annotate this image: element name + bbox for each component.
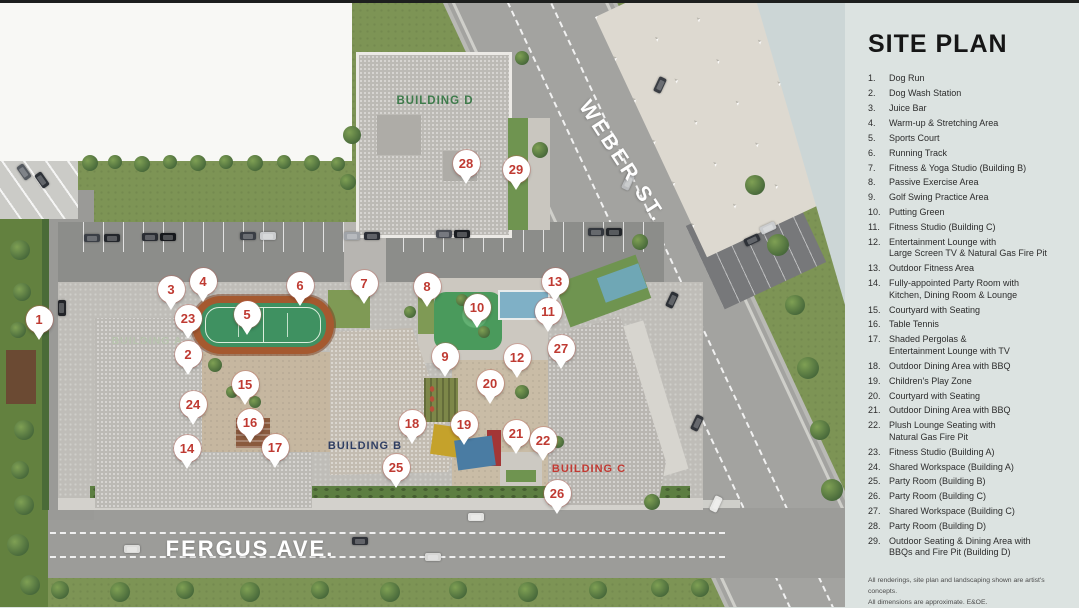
legend-item: 22.Plush Lounge Seating with Natural Gas… (868, 420, 1065, 443)
legend-item: 29.Outdoor Seating & Dining Area with BB… (868, 536, 1065, 559)
legend-item: 7.Fitness & Yoga Studio (Building B) (868, 163, 1065, 174)
map-marker-18: 18 (399, 410, 426, 437)
legend-item-number: 9. (868, 192, 889, 203)
legend-item-number: 27. (868, 506, 889, 517)
map-marker-25: 25 (383, 454, 410, 481)
car (468, 513, 484, 521)
legend-item-number: 4. (868, 118, 889, 129)
legend-item-text: Party Room (Building C) (889, 491, 1065, 502)
map-marker-23: 23 (175, 305, 202, 332)
car (588, 228, 604, 236)
tree (134, 156, 150, 172)
legend-item-text: Outdoor Dining Area with BBQ (889, 361, 1065, 372)
tree (821, 479, 843, 501)
map-marker-6: 6 (287, 272, 314, 299)
map-marker-26: 26 (544, 480, 571, 507)
building-d-terrace-deck (528, 118, 550, 230)
legend-item: 2.Dog Wash Station (868, 88, 1065, 99)
legend-item: 20.Courtyard with Seating (868, 391, 1065, 402)
tree (110, 582, 130, 602)
car (436, 230, 452, 238)
legend-item: 3.Juice Bar (868, 103, 1065, 114)
neighbor-parking-lot (0, 161, 78, 219)
car (58, 300, 66, 316)
map-marker-7: 7 (351, 270, 378, 297)
map-marker-24: 24 (180, 391, 207, 418)
legend-item-number: 22. (868, 420, 889, 443)
legend-item: 16.Table Tennis (868, 319, 1065, 330)
car (104, 234, 120, 242)
disclaimer-line-1: All renderings, site plan and landscapin… (868, 575, 1065, 597)
building-d-label: BUILDING D (396, 95, 473, 107)
tree (219, 155, 233, 169)
map-marker-21: 21 (503, 420, 530, 447)
legend-item: 25.Party Room (Building B) (868, 476, 1065, 487)
map-marker-27: 27 (548, 335, 575, 362)
legend-item-number: 28. (868, 521, 889, 532)
legend-item-number: 20. (868, 391, 889, 402)
tree (518, 582, 538, 602)
tree (515, 385, 529, 399)
legend-item-number: 26. (868, 491, 889, 502)
tree (745, 175, 765, 195)
mulch-bed (6, 350, 36, 404)
tree (651, 579, 669, 597)
legend-list: 1.Dog Run2.Dog Wash Station3.Juice Bar4.… (868, 73, 1065, 559)
legend-item: 17.Shaded Pergolas & Entertainment Loung… (868, 334, 1065, 357)
legend-item: 14.Fully-appointed Party Room with Kitch… (868, 278, 1065, 301)
map-marker-4: 4 (190, 268, 217, 295)
legend-item: 13.Outdoor Fitness Area (868, 263, 1065, 274)
site-plan-map: WEBER ST. FERGUS AVE. BUILDING A BUILDIN… (0, 0, 845, 607)
tree (247, 155, 263, 171)
legend-item-number: 16. (868, 319, 889, 330)
map-marker-10: 10 (464, 294, 491, 321)
legend-item-number: 15. (868, 305, 889, 316)
car (84, 234, 100, 242)
legend-panel: SITE PLAN 1.Dog Run2.Dog Wash Station3.J… (845, 0, 1079, 607)
legend-item-text: Sports Court (889, 133, 1065, 144)
legend-item-text: Outdoor Seating & Dining Area with BBQs … (889, 536, 1065, 559)
legend-item-number: 29. (868, 536, 889, 559)
tree (343, 126, 361, 144)
tree (767, 234, 789, 256)
legend-item: 9.Golf Swing Practice Area (868, 192, 1065, 203)
legend-item: 12.Entertainment Lounge with Large Scree… (868, 237, 1065, 260)
legend-item-number: 11. (868, 222, 889, 233)
tree (240, 582, 260, 602)
flower-bed (428, 384, 438, 416)
map-marker-15: 15 (232, 371, 259, 398)
legend-item-number: 25. (868, 476, 889, 487)
legend-item: 27.Shared Workspace (Building C) (868, 506, 1065, 517)
legend-item-number: 7. (868, 163, 889, 174)
map-marker-29: 29 (503, 156, 530, 183)
legend-item-text: Shaded Pergolas & Entertainment Lounge w… (889, 334, 1065, 357)
legend-item-text: Outdoor Dining Area with BBQ (889, 405, 1065, 416)
legend-item-text: Fitness Studio (Building A) (889, 447, 1065, 458)
tree (10, 240, 30, 260)
legend-item: 15.Courtyard with Seating (868, 305, 1065, 316)
map-marker-12: 12 (504, 344, 531, 371)
tree (785, 295, 805, 315)
map-marker-8: 8 (414, 273, 441, 300)
tree (208, 358, 222, 372)
legend-item: 24.Shared Workspace (Building A) (868, 462, 1065, 473)
tree (644, 494, 660, 510)
tree (10, 322, 26, 338)
map-marker-14: 14 (174, 435, 201, 462)
map-marker-9: 9 (432, 343, 459, 370)
map-marker-3: 3 (158, 276, 185, 303)
disclaimer: All renderings, site plan and landscapin… (868, 575, 1065, 608)
map-marker-19: 19 (451, 411, 478, 438)
tree (331, 157, 345, 171)
legend-item-text: Dog Wash Station (889, 88, 1065, 99)
legend-item-text: Dog Run (889, 73, 1065, 84)
map-marker-13: 13 (542, 268, 569, 295)
tree (163, 155, 177, 169)
legend-item-text: Shared Workspace (Building C) (889, 506, 1065, 517)
legend-item-text: Juice Bar (889, 103, 1065, 114)
legend-item-number: 6. (868, 148, 889, 159)
disclaimer-line-2: All dimensions are approximate. E&OE. (868, 597, 1065, 608)
car (425, 553, 441, 561)
legend-item-number: 21. (868, 405, 889, 416)
tree (277, 155, 291, 169)
legend-item-text: Party Room (Building B) (889, 476, 1065, 487)
legend-item-text: Courtyard with Seating (889, 305, 1065, 316)
legend-item-text: Fitness & Yoga Studio (Building B) (889, 163, 1065, 174)
tree (304, 155, 320, 171)
legend-item: 4.Warm-up & Stretching Area (868, 118, 1065, 129)
legend-item-number: 17. (868, 334, 889, 357)
tree (449, 581, 467, 599)
tree (515, 51, 529, 65)
map-marker-17: 17 (262, 434, 289, 461)
legend-item-text: Party Room (Building D) (889, 521, 1065, 532)
legend-item-number: 14. (868, 278, 889, 301)
tree (11, 461, 29, 479)
building-b-label: BUILDING B (328, 440, 402, 452)
legend-item-number: 12. (868, 237, 889, 260)
tree (691, 579, 709, 597)
legend-item: 26.Party Room (Building C) (868, 491, 1065, 502)
legend-item: 11.Fitness Studio (Building C) (868, 222, 1065, 233)
legend-item-text: Plush Lounge Seating with Natural Gas Fi… (889, 420, 1065, 443)
tree (20, 575, 40, 595)
legend-item-text: Warm-up & Stretching Area (889, 118, 1065, 129)
tree (532, 142, 548, 158)
legend-item: 23.Fitness Studio (Building A) (868, 447, 1065, 458)
legend-item: 28.Party Room (Building D) (868, 521, 1065, 532)
map-marker-1: 1 (26, 306, 53, 333)
legend-item-text: Golf Swing Practice Area (889, 192, 1065, 203)
legend-item-number: 24. (868, 462, 889, 473)
legend-item-number: 10. (868, 207, 889, 218)
car (124, 545, 140, 553)
tree (632, 234, 648, 250)
legend-item: 19.Children's Play Zone (868, 376, 1065, 387)
legend-item: 18.Outdoor Dining Area with BBQ (868, 361, 1065, 372)
legend-item: 6.Running Track (868, 148, 1065, 159)
legend-item-text: Outdoor Fitness Area (889, 263, 1065, 274)
legend-item-text: Putting Green (889, 207, 1065, 218)
car (364, 232, 380, 240)
sports-court (200, 303, 326, 347)
tree (176, 581, 194, 599)
legend-item-number: 13. (868, 263, 889, 274)
tree (810, 420, 830, 440)
building-c-label: BUILDING C (552, 463, 626, 475)
tree (311, 581, 329, 599)
legend-item: 1.Dog Run (868, 73, 1065, 84)
legend-item-text: Fully-appointed Party Room with Kitchen,… (889, 278, 1065, 301)
image-crop-white-area (0, 3, 352, 161)
legend-item-text: Children's Play Zone (889, 376, 1065, 387)
car (260, 232, 276, 240)
building-d-roof (356, 52, 512, 238)
tree (51, 581, 69, 599)
tree (82, 155, 98, 171)
legend-item: 5.Sports Court (868, 133, 1065, 144)
tree (797, 357, 819, 379)
legend-item-text: Entertainment Lounge with Large Screen T… (889, 237, 1065, 260)
car (160, 233, 176, 241)
car (454, 230, 470, 238)
legend-item-number: 19. (868, 376, 889, 387)
legend-item-number: 3. (868, 103, 889, 114)
map-marker-20: 20 (477, 370, 504, 397)
legend-item-text: Courtyard with Seating (889, 391, 1065, 402)
car (240, 232, 256, 240)
car (352, 537, 368, 545)
map-marker-28: 28 (453, 150, 480, 177)
tree (14, 420, 34, 440)
fergus-avenue-road (0, 508, 845, 578)
map-marker-16: 16 (237, 409, 264, 436)
tree (14, 495, 34, 515)
image-top-border (0, 0, 1079, 3)
legend-item-text: Fitness Studio (Building C) (889, 222, 1065, 233)
running-track (192, 296, 334, 354)
tree (404, 306, 416, 318)
legend-item: 21.Outdoor Dining Area with BBQ (868, 405, 1065, 416)
legend-item-text: Table Tennis (889, 319, 1065, 330)
map-marker-5: 5 (234, 301, 261, 328)
tree (380, 582, 400, 602)
building-a-label: BUILDING A (112, 335, 183, 347)
legend-item-number: 1. (868, 73, 889, 84)
legend-item-number: 23. (868, 447, 889, 458)
legend-item-number: 2. (868, 88, 889, 99)
page-title: SITE PLAN (868, 30, 1065, 59)
car (344, 232, 360, 240)
tree (340, 174, 356, 190)
legend-item: 10.Putting Green (868, 207, 1065, 218)
tree (190, 155, 206, 171)
fergus-avenue-label: FERGUS AVE. (166, 536, 335, 562)
tree (7, 534, 29, 556)
map-marker-22: 22 (530, 427, 557, 454)
tree (589, 581, 607, 599)
tree (108, 155, 122, 169)
legend-item-text: Shared Workspace (Building A) (889, 462, 1065, 473)
legend-item-number: 5. (868, 133, 889, 144)
legend-item-number: 8. (868, 177, 889, 188)
legend-item-text: Running Track (889, 148, 1065, 159)
car (142, 233, 158, 241)
legend-item-text: Passive Exercise Area (889, 177, 1065, 188)
tree (13, 283, 31, 301)
legend-item: 8.Passive Exercise Area (868, 177, 1065, 188)
legend-item-number: 18. (868, 361, 889, 372)
car (606, 228, 622, 236)
